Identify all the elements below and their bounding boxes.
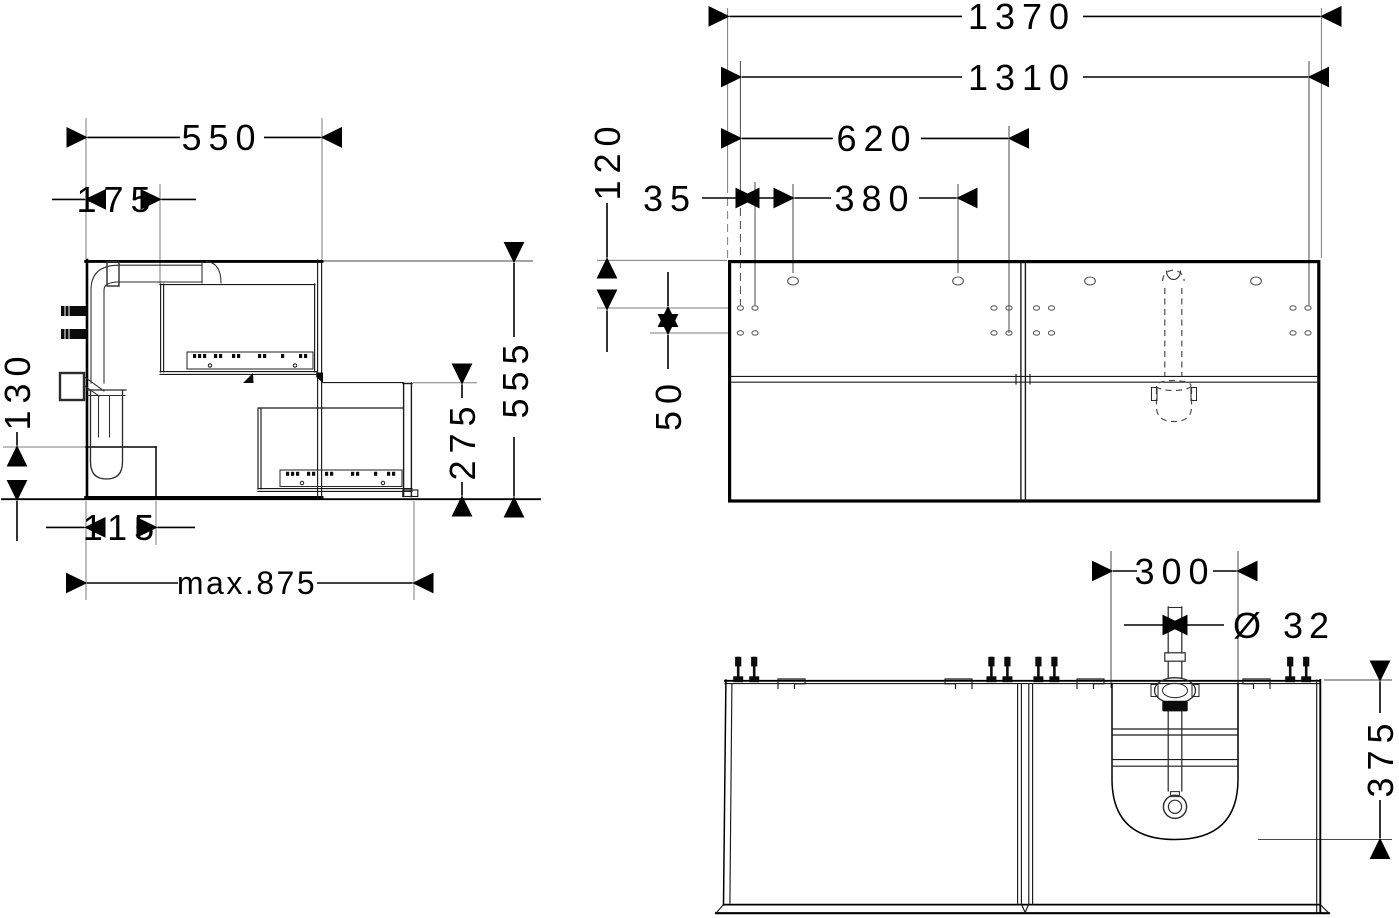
plan-cabinet-outline [716,680,1329,913]
dim-300-label: 300 [1134,551,1215,592]
dim-diameter-32: Ø 32 [1124,605,1335,646]
dim-300: 300 [1113,551,1237,592]
front-cabinet-outline [730,262,1319,501]
dim-380: 380 [795,178,957,219]
dim-550: 550 [88,117,321,158]
front-extension-lines [597,8,1321,333]
dim-115-label: 115 [83,507,161,548]
dim-620: 620 [742,118,1008,159]
dim-1370: 1370 [730,0,1321,37]
dim-max-875: max.875 [87,565,413,601]
side-cabinet-outline [86,260,323,498]
upper-drawer [160,284,317,374]
dim-120: 120 [587,119,628,352]
dim-275: 275 [442,385,483,496]
wall-mounting-bolts [61,306,86,339]
vanity-dimension-drawing: 550 175 130 115 max.875 275 [0,0,1399,918]
bracket-pin [733,657,759,682]
rail-ball-ticks [286,472,395,476]
drain-outlet [1163,795,1186,818]
dim-50-label: 50 [648,377,689,431]
front-view: 1370 1310 620 120 35 380 [587,0,1321,501]
dim-130: 130 [0,349,38,541]
plan-divider [1018,684,1033,913]
wall-mounting-brackets [733,657,1311,682]
pipe-collar [1165,653,1185,661]
bracket-pin [986,657,1012,682]
dim-375: 375 [1360,682,1399,839]
seal-band [1162,701,1187,712]
dim-1310: 1310 [742,57,1308,98]
mounting-holes [737,277,1311,335]
dim-275-label: 275 [442,399,483,480]
dim-175: 175 [52,179,196,220]
rail-ball-ticks [193,354,307,358]
plan-extension-lines [1111,551,1392,840]
dim-620-label: 620 [836,118,917,159]
dim-1310-label: 1310 [968,57,1076,98]
bracket-pin [1033,657,1059,682]
dim-35: 35 [643,178,779,219]
hanger-rail-lines [1112,729,1238,766]
plan-view: 300 Ø 32 375 [716,551,1399,913]
hidden-drain-dashed [1152,270,1197,421]
technical-drawing-sheet: 550 175 130 115 max.875 275 [0,0,1399,918]
dim-115: 115 [46,507,195,548]
dim-120-label: 120 [587,119,628,200]
dim-50: 50 [648,272,689,431]
bracket-pin [1285,657,1311,682]
dim-550-label: 550 [181,117,262,158]
lower-drawer-extended [243,373,418,497]
side-view: 550 175 130 115 max.875 275 [0,117,540,601]
dim-380-label: 380 [834,178,915,219]
dim-35-label: 35 [643,178,697,219]
dim-130-label: 130 [0,349,38,430]
dim-max-875-label: max.875 [177,565,317,601]
plan-drain-pipe [1151,607,1199,818]
dim-175-label: 175 [76,179,157,220]
wall-outlet-box [60,373,84,400]
dim-1370-label: 1370 [968,0,1076,37]
dim-diameter-32-label: Ø 32 [1233,605,1335,646]
dim-555-label: 555 [495,337,536,418]
dim-375-label: 375 [1360,716,1399,797]
bottle-trap-cup [91,390,123,479]
drain-elbow-shoulder [206,262,221,284]
dim-555: 555 [495,263,536,497]
